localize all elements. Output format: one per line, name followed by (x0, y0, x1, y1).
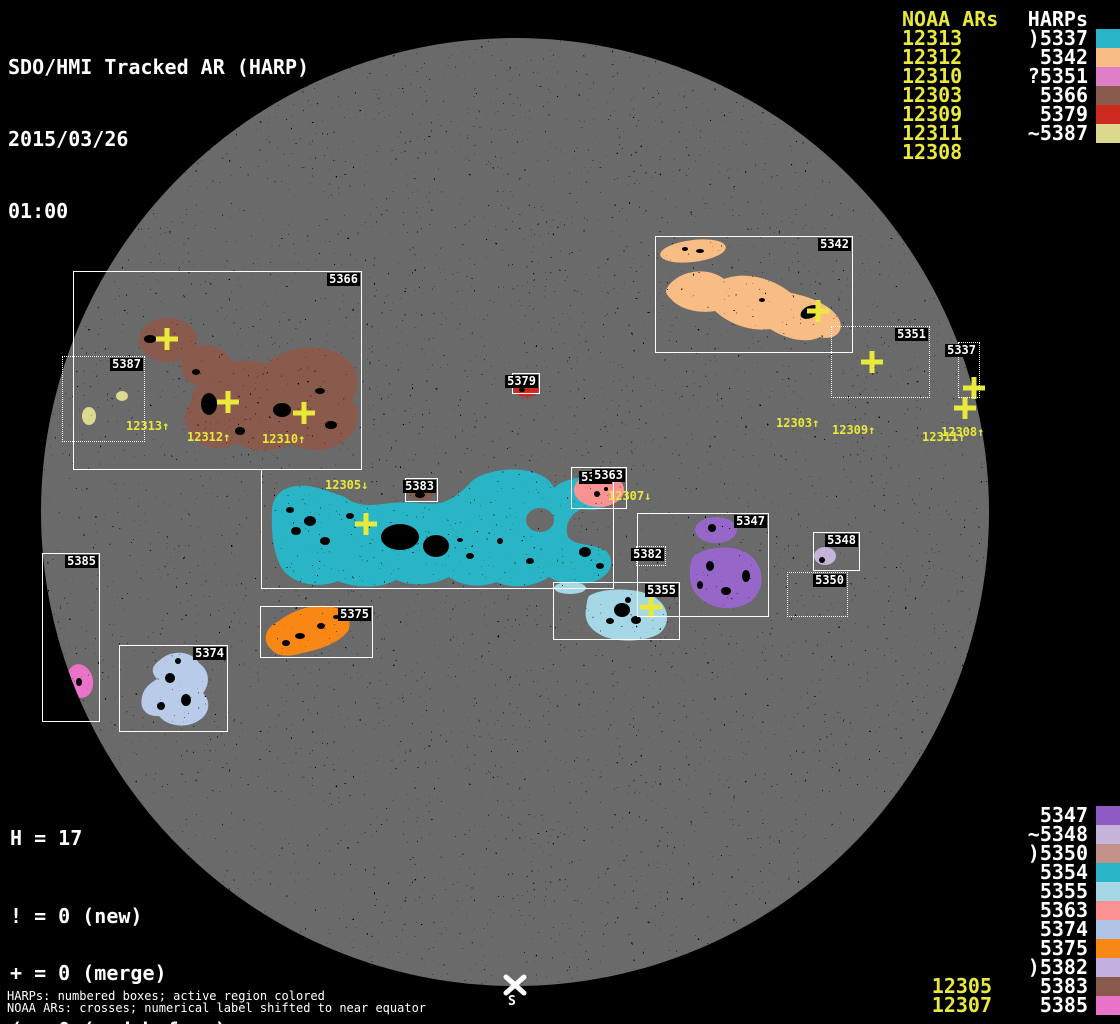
noaa-disk-label-12305: 12305↓ (325, 479, 368, 492)
noaa-number: 12307 (902, 996, 992, 1015)
harp-box-5337: 5337 (958, 342, 980, 398)
harp-box-label: 5382 (631, 548, 664, 561)
flag-new: ! = 0 (new) (10, 907, 239, 926)
harp-box-label: 5347 (734, 515, 767, 528)
noaa-disk-label-12312: 12312↑ (187, 431, 230, 444)
harp-number: 5385 (992, 996, 1088, 1015)
harp-box-label: 5337 (945, 344, 978, 357)
harp-color-swatch (1096, 48, 1120, 67)
south-label: S (508, 995, 516, 1008)
harp-number: ~5387 (982, 124, 1088, 143)
harp-color-swatch (1096, 86, 1120, 105)
flag-merge: + = 0 (merge) (10, 964, 239, 983)
harp-color-swatch (1096, 901, 1120, 920)
sdo-harp-screenshot: 5366 5387 5342 5351 5337 5379 5354 5383 … (0, 0, 1120, 1024)
harp-color-swatch (1096, 977, 1120, 996)
harp-box-label: 5374 (193, 647, 226, 660)
harp-color-swatch (1096, 29, 1120, 48)
noaa-number: 12308 (902, 143, 982, 162)
harp-box-5379: 5379 (512, 373, 540, 394)
harp-box-5350: 5350 (787, 572, 848, 617)
harp-color-swatch (1096, 939, 1120, 958)
noaa-disk-label-12307: 12307↓ (608, 490, 651, 503)
harp-box-label: 5387 (110, 358, 143, 371)
harp-count: H = 17 (10, 829, 82, 848)
time-label: 01:00 (8, 199, 309, 223)
harp-color-swatch (1096, 124, 1120, 143)
legend-top-right: 12313)5337 123125342 12310?5351 12303536… (902, 29, 1120, 162)
harp-color-swatch (1096, 863, 1120, 882)
harp-color-swatch (1096, 920, 1120, 939)
noaa-disk-label-12310: 12310↑ (262, 433, 305, 446)
harp-box-5348: 5348 (813, 532, 860, 571)
harp-box-label: 5363 (592, 469, 625, 482)
page-title: SDO/HMI Tracked AR (HARP) (8, 55, 309, 79)
harp-box-label: 5342 (818, 238, 851, 251)
harp-box-label: 5355 (645, 584, 678, 597)
harp-box-label: 5348 (825, 534, 858, 547)
harp-box-label: 5366 (327, 273, 360, 286)
harp-color-swatch (1096, 844, 1120, 863)
harp-box-label: 5383 (403, 480, 436, 493)
legend-row: 123075385 (902, 996, 1120, 1015)
harp-box-label: 5375 (338, 608, 371, 621)
harp-box-5375: 5375 (260, 606, 373, 658)
harp-color-swatch (1096, 825, 1120, 844)
harp-color-swatch (1096, 105, 1120, 124)
harp-box-label: 5351 (895, 328, 928, 341)
noaa-disk-label-12309: 12309↑ (832, 424, 875, 437)
harp-box-5383: 5383 (405, 478, 438, 502)
footnote-noaa: NOAA ARs: crosses; numerical label shift… (7, 1003, 426, 1014)
harp-color-swatch (1096, 996, 1120, 1015)
harp-box-5382: 5382 (636, 546, 666, 566)
harp-color-swatch (1096, 958, 1120, 977)
legend-bottom-right: 5347 ~5348 )5350 5354 5355 5363 5374 537… (902, 806, 1120, 1015)
noaa-disk-label-12311: 12311↑ (922, 431, 965, 444)
harp-box-5374: 5374 (119, 645, 228, 732)
harp-box-5355: 5355 (553, 582, 680, 640)
legend-row: 12308 (902, 143, 1120, 162)
harp-box-5342: 5342 (655, 236, 853, 353)
title-block: SDO/HMI Tracked AR (HARP) 2015/03/26 01:… (8, 7, 309, 271)
date-label: 2015/03/26 (8, 127, 309, 151)
noaa-disk-label-12303: 12303↑ (776, 417, 819, 430)
harp-color-swatch (1096, 143, 1120, 162)
harp-box-label: 5379 (505, 375, 538, 388)
harp-box-label: 5385 (65, 555, 98, 568)
harp-color-swatch (1096, 882, 1120, 901)
harp-box-5351: 5351 (831, 326, 930, 398)
harp-box-5385: 5385 (42, 553, 100, 722)
harp-box-label: 5350 (813, 574, 846, 587)
harp-color-swatch (1096, 67, 1120, 86)
harp-color-swatch (1096, 806, 1120, 825)
noaa-disk-label-12313: 12313↑ (126, 420, 169, 433)
